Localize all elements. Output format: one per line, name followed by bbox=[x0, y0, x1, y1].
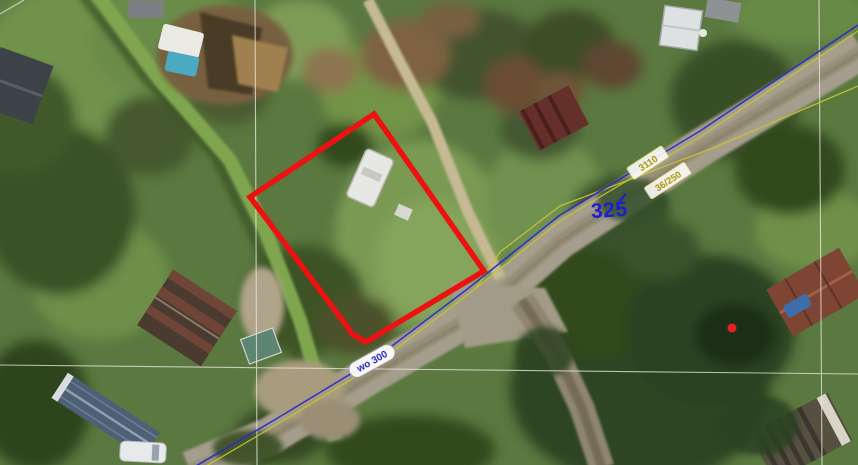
point-marker bbox=[728, 324, 737, 333]
distance-label: 325 bbox=[590, 198, 628, 223]
white-building bbox=[659, 6, 702, 51]
roof-fragment bbox=[128, 0, 164, 18]
white-van bbox=[120, 441, 167, 463]
white-object bbox=[699, 29, 707, 37]
aerial-map-canvas[interactable]: 325 3110 36/250 wo 300 bbox=[0, 0, 858, 465]
